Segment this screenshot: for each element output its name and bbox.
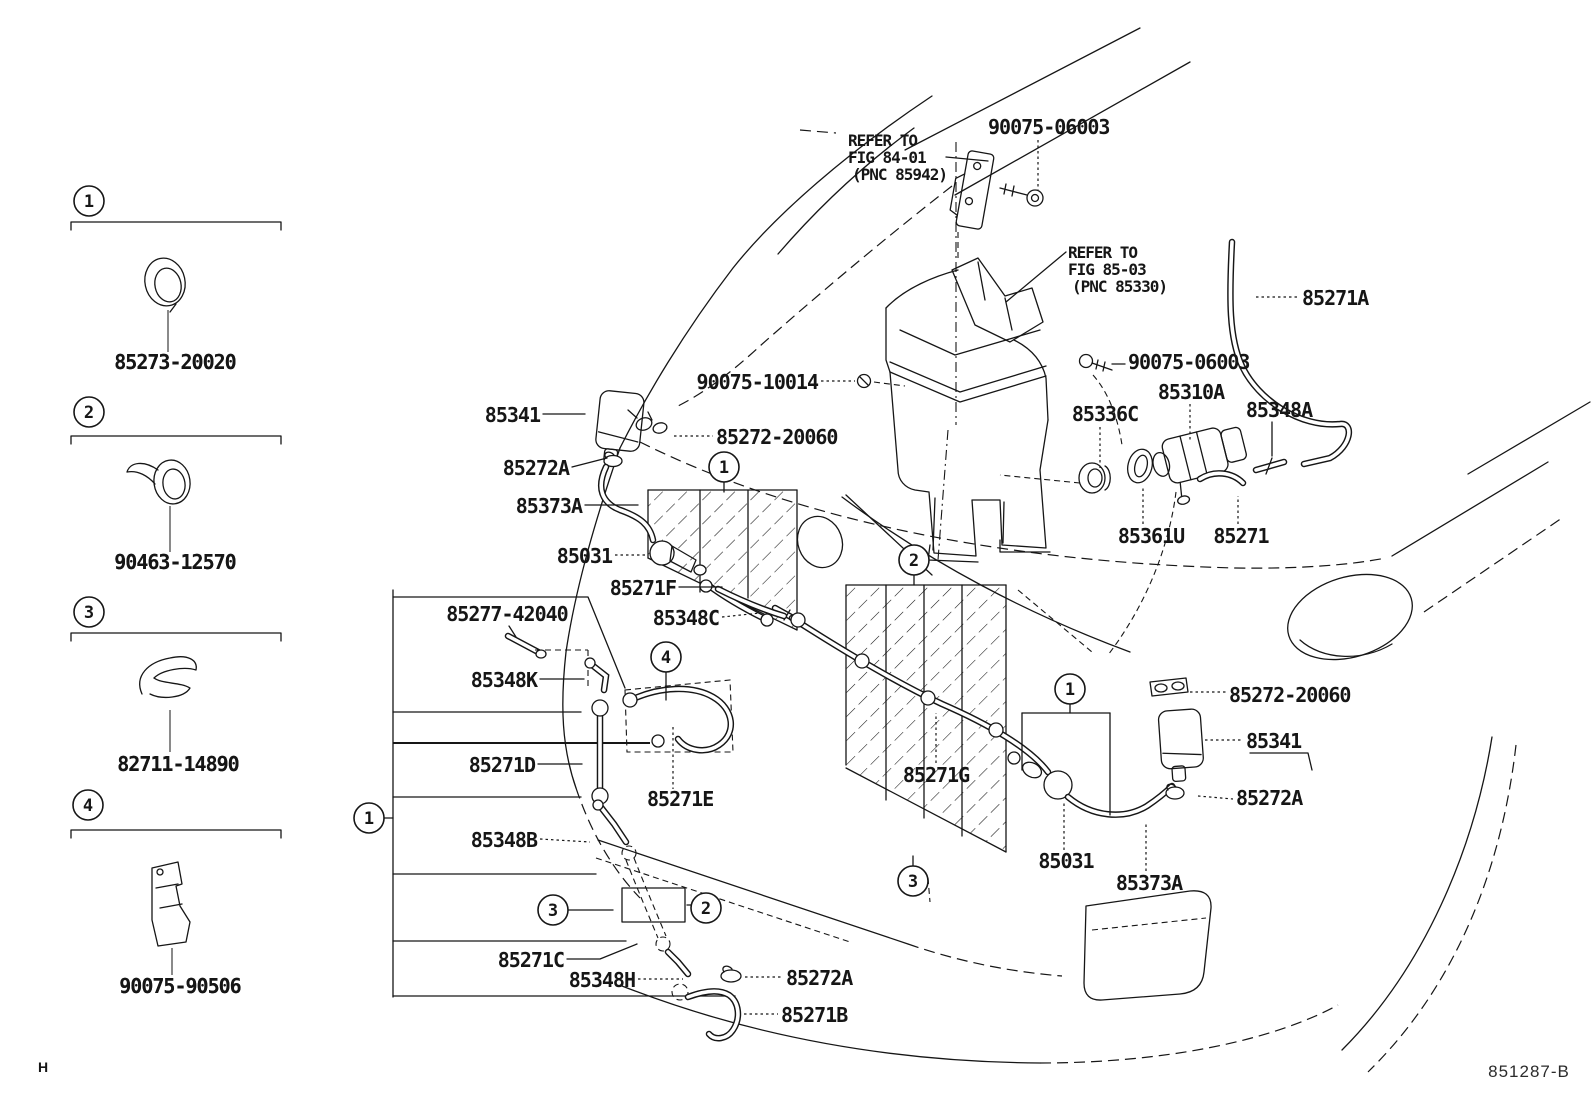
svg-text:1: 1 [1065,680,1075,700]
parts-diagram-page: 1 2 3 4 85273-20020 90463-12570 82711-14… [0,0,1592,1099]
part-label-85272a: 85272A [786,966,853,990]
part-label-85271: 85271 [1213,524,1269,548]
assembly-marker-3: 3 [898,866,928,896]
reference-notes-layer: REFER TOFIG 84-01(PNC 85942)REFER TOFIG … [848,131,1167,296]
legend-item-4: 4 [71,790,281,975]
part-label-85348a: 85348A [1246,398,1313,422]
part-label-85271d: 85271D [469,753,536,777]
legend-num-3: 3 [84,603,94,623]
legend-item-2: 2 [71,397,281,552]
part-label-85271c: 85271C [498,948,564,972]
reference-note-2: REFER TOFIG 85-03(PNC 85330) [1068,243,1167,296]
assembly-marker-2: 2 [691,893,721,923]
part-label-90075-06003: 90075-06003 [1128,350,1249,374]
svg-text:2: 2 [701,899,711,919]
lower-hose-assembly-art [393,590,741,1038]
grille-block-lower [846,585,1006,852]
drawing-number: 851287-B [1488,1062,1570,1081]
assembly-marker-4: 4 [651,642,681,672]
legend-num-4: 4 [83,796,93,816]
part-label-85271g: 85271G [903,763,970,787]
svg-text:3: 3 [548,901,558,921]
svg-text:1: 1 [364,809,374,829]
assembly-marker-1: 1 [354,803,384,833]
part-label-85272a: 85272A [503,456,570,480]
reference-note-1: REFER TOFIG 84-01(PNC 85942) [848,131,947,184]
svg-text:3: 3 [908,872,918,892]
part-label-85373a: 85373A [516,494,583,518]
part-label-85272-20060: 85272-20060 [716,425,837,449]
part-label-85271a: 85271A [1302,286,1369,310]
corner-mark: H [38,1059,48,1075]
part-label-85348b: 85348B [471,828,538,852]
part-label-85271e: 85271E [647,787,713,811]
part-label-90463-12570: 90463-12570 [114,550,235,574]
part-label-85348k: 85348K [471,668,538,692]
legend-num-1: 1 [84,192,94,212]
part-label-85031: 85031 [557,544,613,568]
assembly-marker-1: 1 [709,452,739,482]
screw-90075-06003-top [1000,184,1043,206]
part-label-82711-14890: 82711-14890 [117,752,238,776]
part-label-85271f: 85271F [610,576,676,600]
part-label-90075-06003: 90075-06003 [988,115,1109,139]
part-label-85273-20020: 85273-20020 [114,350,235,374]
assembly-marker-1: 1 [1055,674,1085,704]
part-label-85336c: 85336C [1072,402,1138,426]
washer-system-parts-diagram: 1 2 3 4 85273-20020 90463-12570 82711-14… [0,0,1592,1099]
part-label-85310a: 85310A [1158,380,1225,404]
legend-num-2: 2 [84,403,94,423]
part-label-85341: 85341 [485,403,541,427]
part-label-85341: 85341 [1246,729,1302,753]
part-label-85361u: 85361U [1118,524,1184,548]
part-label-85272a: 85272A [1236,786,1303,810]
part-label-85373a: 85373A [1116,871,1183,895]
assembly-marker-2: 2 [899,545,929,575]
svg-text:1: 1 [719,458,729,478]
part-label-85348h: 85348H [569,968,635,992]
legend-item-1: 1 [71,186,281,352]
assembly-marker-3: 3 [538,895,568,925]
svg-text:2: 2 [909,551,919,571]
legend-item-3: 3 [71,597,281,752]
screw-90075-10014 [858,375,906,388]
part-label-90075-10014: 90075-10014 [697,370,819,394]
part-label-85272-20060: 85272-20060 [1229,683,1350,707]
part-label-90075-90506: 90075-90506 [119,974,240,998]
part-label-85348c: 85348C [653,606,719,630]
screw-90075-06003-right [1080,355,1113,372]
part-label-85271b: 85271B [781,1003,848,1027]
svg-text:4: 4 [661,648,671,668]
part-label-85031: 85031 [1038,849,1094,873]
part-label-85277-42040: 85277-42040 [446,602,567,626]
